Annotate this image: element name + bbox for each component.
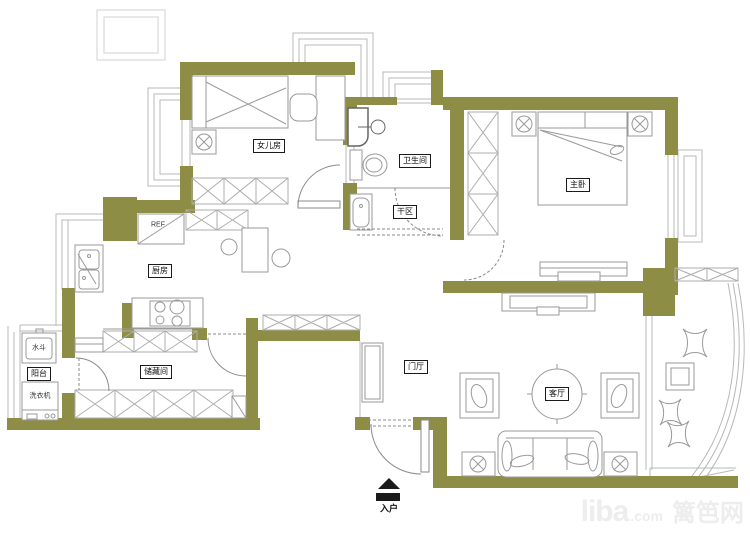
kitchen-table [221,228,290,272]
shower [348,108,385,146]
daughter-wardrobe [192,178,288,204]
floor-plan-drawing [0,0,750,537]
label-dry-area: 干区 [393,205,417,219]
armchair-right [601,373,639,418]
dry-area-vanity [350,194,372,230]
refrigerator [138,214,184,244]
stool [272,249,290,267]
master-bench [540,262,627,281]
side-table-right [604,452,637,476]
storage-top-cabinets [103,331,197,352]
daughter-bed [192,76,288,128]
storage-bottom-wardrobe [75,390,233,418]
bay-window-arcs [692,283,744,485]
label-washing-machine: 洗衣机 [30,393,51,400]
label-bathroom: 卫生间 [399,154,431,168]
label-daughter-room: 女儿房 [253,139,285,153]
window-shaft-above-bathroom [383,72,431,97]
label-refrigerator: REF [151,222,165,229]
master-window-inner [684,156,696,236]
storage-door [208,334,246,376]
bay-table [666,363,694,390]
storage-shelf [75,338,103,352]
toilet [350,150,387,180]
tv-cabinet [502,293,595,315]
kitchen-upper-cabinets [186,210,248,230]
daughter-nightstand [192,130,216,154]
stool [221,239,237,255]
floor-plan: 女儿房 卫生间 干区 主卧 厨房 储藏间 阳台 门厅 客厅 REF 水斗 洗衣机… [0,0,750,537]
label-living-room: 客厅 [545,387,569,401]
master-nightstand-left [512,112,536,136]
armchair-left [460,373,499,418]
hall-cabinets [263,315,360,330]
ac-platform-inner [104,17,158,53]
label-entry: 入户 [380,502,398,515]
daughter-room-side-window [148,88,180,186]
bay-top-hatch [675,268,738,281]
stove [132,298,203,328]
master-nightstand-right [628,112,652,136]
master-bedroom-door [464,240,504,280]
shower-head-icon [371,120,385,134]
sofa [498,431,602,477]
balcony-door [76,358,109,391]
master-wardrobe [468,112,498,235]
daughter-desk [316,76,345,140]
shoe-cabinet [362,343,383,402]
label-master-bedroom: 主卧 [566,178,590,192]
daughter-room-door [298,165,340,208]
label-storage: 储藏间 [140,365,172,379]
label-balcony: 阳台 [27,367,51,381]
furniture [22,76,707,477]
master-window-outer [678,150,702,242]
watermark-site: 篱笆网 [672,493,744,528]
side-table-left [462,452,495,476]
watermark-logo: liba .com 篱笆网 [581,493,744,529]
label-entry-hall: 门厅 [404,360,428,374]
label-kitchen: 厨房 [148,264,172,278]
label-water-basin: 水斗 [32,345,46,352]
watermark-tld: .com [630,508,663,524]
washing-machine [22,382,58,420]
daughter-chair [290,94,317,121]
storage-corner-unit [232,396,246,418]
kitchen-sink [75,245,103,292]
watermark-brand: liba [581,495,629,529]
entry-arrow-icon [376,478,400,501]
